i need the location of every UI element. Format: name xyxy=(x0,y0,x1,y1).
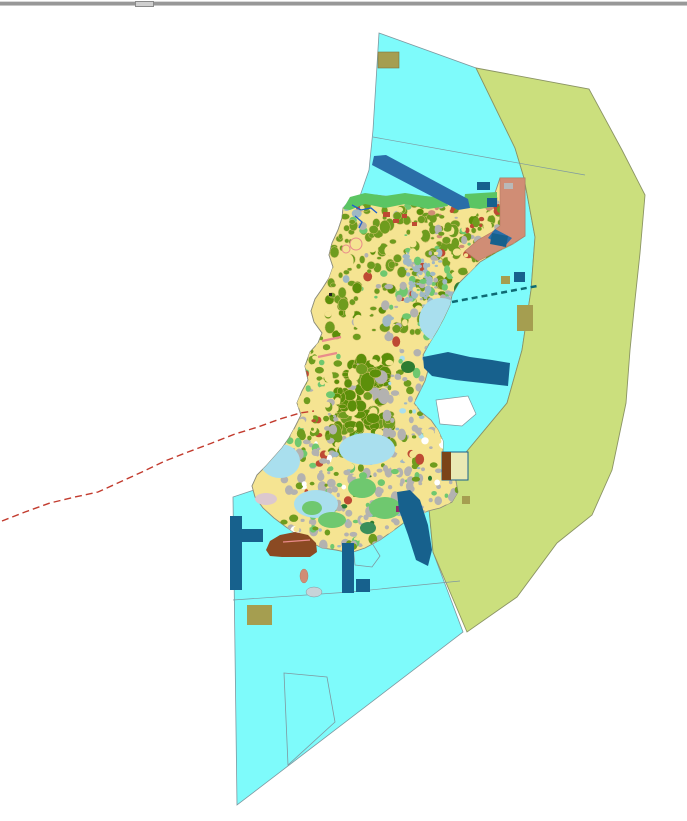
khaki-block-north xyxy=(378,52,399,68)
land-use-map[interactable] xyxy=(0,0,687,821)
gray-islet xyxy=(306,587,322,597)
green-patch-3 xyxy=(318,512,346,528)
khaki-dot-se xyxy=(462,496,470,504)
teal-green-patch xyxy=(360,522,376,534)
pier-west-horizontal xyxy=(232,529,263,542)
park-dark-green-2 xyxy=(401,361,415,373)
pier-south xyxy=(342,543,354,593)
navy-block-ne-1 xyxy=(477,182,490,190)
black-dot-2 xyxy=(301,381,304,384)
salmon-islet xyxy=(300,569,308,583)
circle-islet-nw-1 xyxy=(350,238,362,250)
gray-dot-in-salmon xyxy=(504,183,513,189)
khaki-small-east xyxy=(501,276,510,284)
pier-west-vertical xyxy=(230,516,242,590)
circle-islet-nw-2 xyxy=(342,245,350,253)
brick-parcel-2 xyxy=(393,219,399,223)
inlet-south-center xyxy=(339,433,395,465)
inlet-southwest xyxy=(260,444,300,478)
navy-block-ne-2 xyxy=(487,198,497,207)
brick-parcel-1 xyxy=(383,212,390,217)
brick-parcel-3 xyxy=(402,214,407,218)
map-viewport[interactable] xyxy=(0,0,687,821)
navy-square-south xyxy=(356,579,370,592)
brick-parcel-4 xyxy=(412,222,417,226)
green-patch-1 xyxy=(348,478,376,498)
navy-small-east xyxy=(514,272,525,282)
brown-strip-east xyxy=(442,452,451,480)
khaki-block-south xyxy=(247,605,272,625)
light-pink-patch xyxy=(255,493,277,505)
khaki-block-east xyxy=(517,305,533,331)
green-patch-4 xyxy=(302,501,322,515)
black-dot-1 xyxy=(329,293,332,296)
